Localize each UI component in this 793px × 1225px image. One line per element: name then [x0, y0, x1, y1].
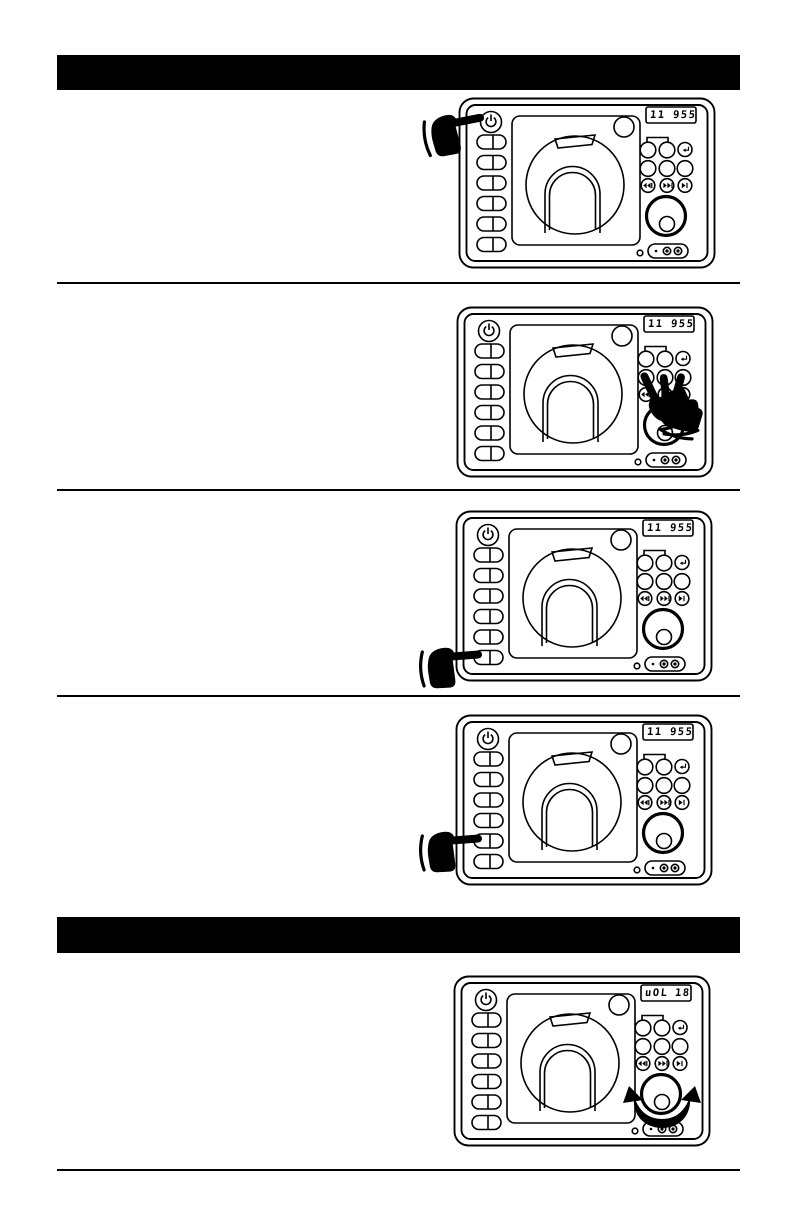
rotate-knob-arrow-icon	[623, 1086, 701, 1134]
radio-faceplate	[458, 97, 716, 269]
lcd-display: 11 955	[644, 521, 696, 535]
lcd-left-value: 11	[646, 522, 663, 534]
lcd-right-value: 18	[675, 987, 692, 999]
lcd-display: 11 955	[644, 725, 696, 739]
pointing-hand-icon	[416, 643, 484, 692]
pointing-hand-icon	[416, 827, 484, 876]
lcd-display: uOL 18	[642, 986, 694, 1000]
section-header-bar-2	[57, 917, 740, 953]
step-1-radio-illustration: 11 955	[458, 97, 716, 269]
divider-line	[57, 489, 740, 491]
lcd-right-value: 955	[672, 109, 697, 121]
lcd-display: 11 955	[647, 108, 699, 122]
lcd-left-value: 11	[646, 726, 663, 738]
divider-line	[57, 282, 740, 284]
divider-line	[57, 695, 740, 697]
step-3-radio-illustration: 11 955	[455, 510, 713, 682]
lcd-right-value: 955	[670, 318, 695, 330]
lcd-right-value: 955	[669, 726, 694, 738]
radio-faceplate	[455, 714, 713, 886]
lcd-left-value: 11	[649, 109, 666, 121]
lcd-right-value: 955	[669, 522, 694, 534]
step-4-radio-illustration: 11 955	[455, 714, 713, 886]
section-header-bar-1	[57, 55, 740, 90]
radio-faceplate	[455, 510, 713, 682]
lcd-left-value: uOL	[644, 987, 669, 999]
divider-line	[57, 1169, 740, 1171]
lcd-left-value: 11	[647, 318, 664, 330]
lcd-display: 11 955	[645, 317, 697, 331]
manual-page: 11 955 11 955 11 955 11 955 uOL	[0, 0, 793, 1225]
